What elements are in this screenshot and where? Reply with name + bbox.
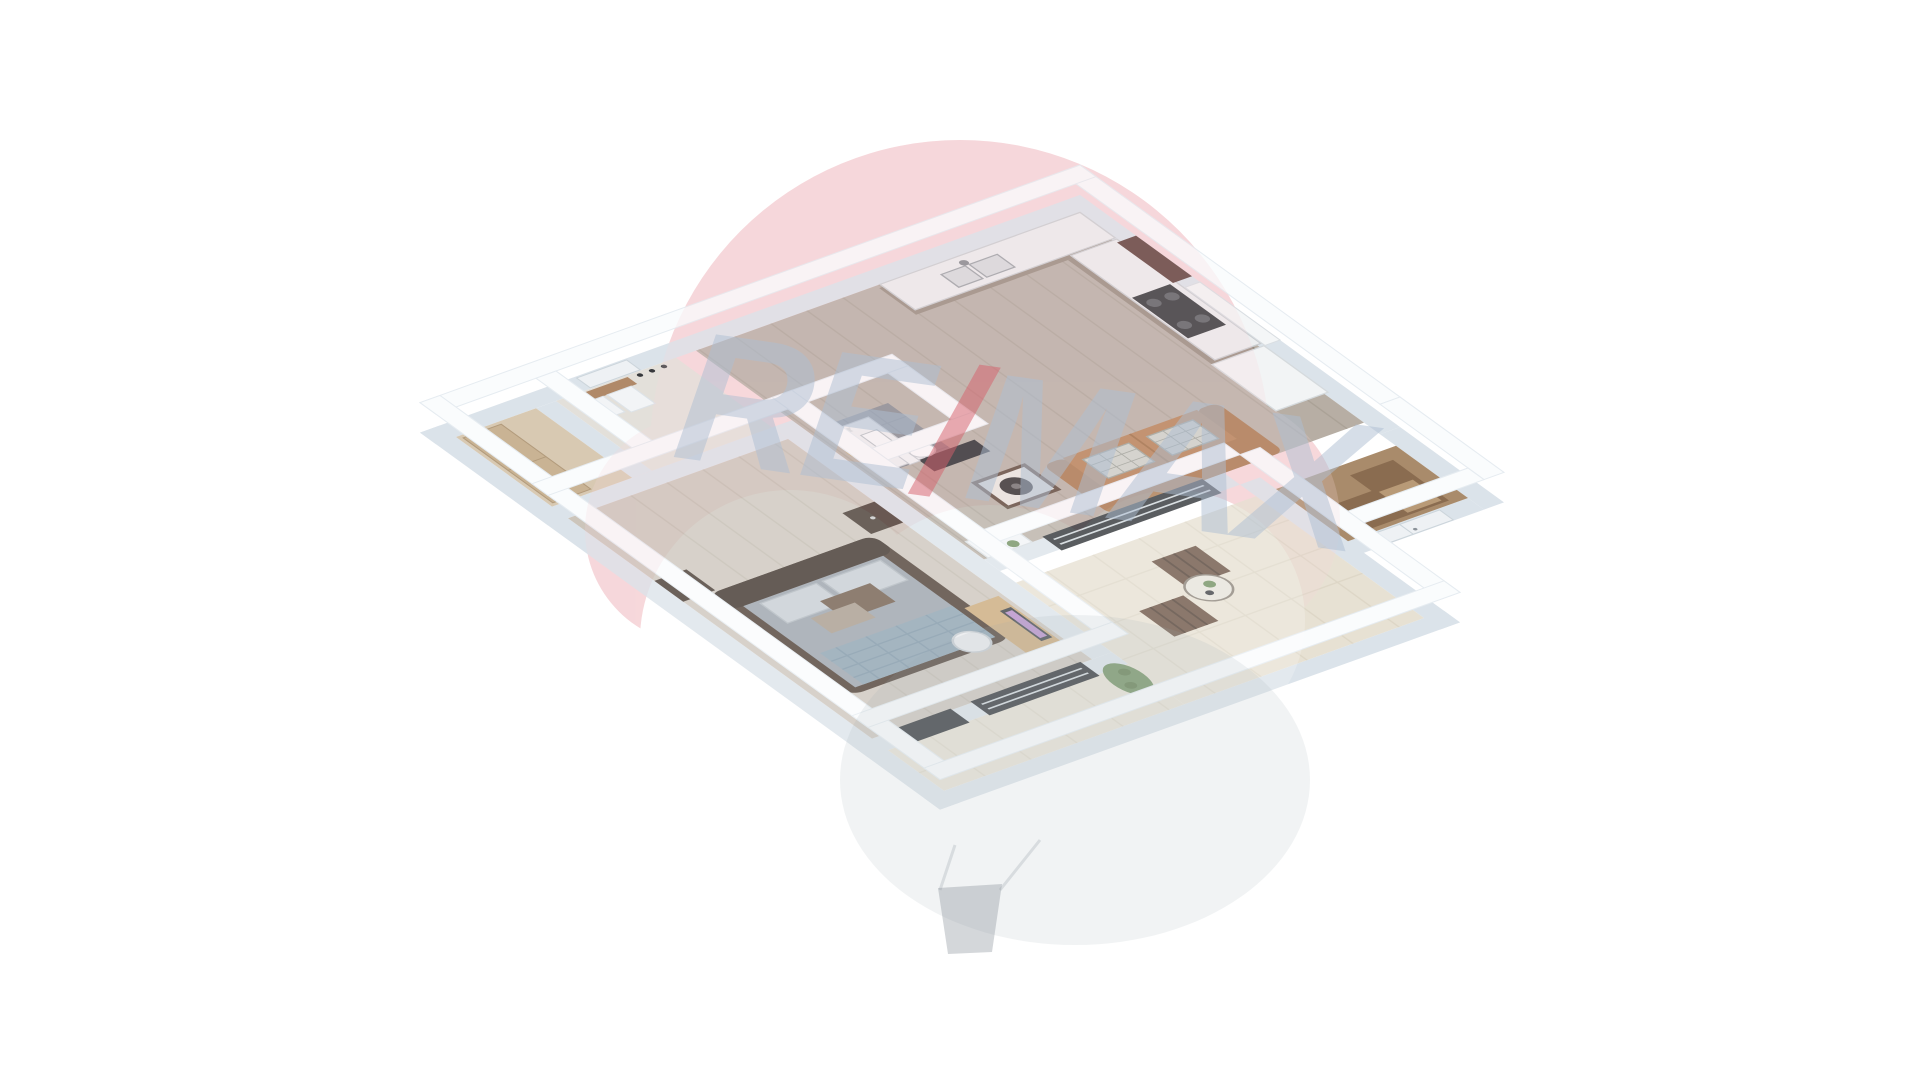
balloon-basket xyxy=(938,884,1002,954)
balloon-bottom-shade xyxy=(840,615,1310,945)
floorplan-render: RE/MAX xyxy=(0,0,1920,1080)
watermark-re: RE xyxy=(665,292,947,532)
isometric-floorplan: RE/MAX xyxy=(0,0,1920,1080)
remax-watermark-front: RE/MAX xyxy=(585,140,1390,954)
